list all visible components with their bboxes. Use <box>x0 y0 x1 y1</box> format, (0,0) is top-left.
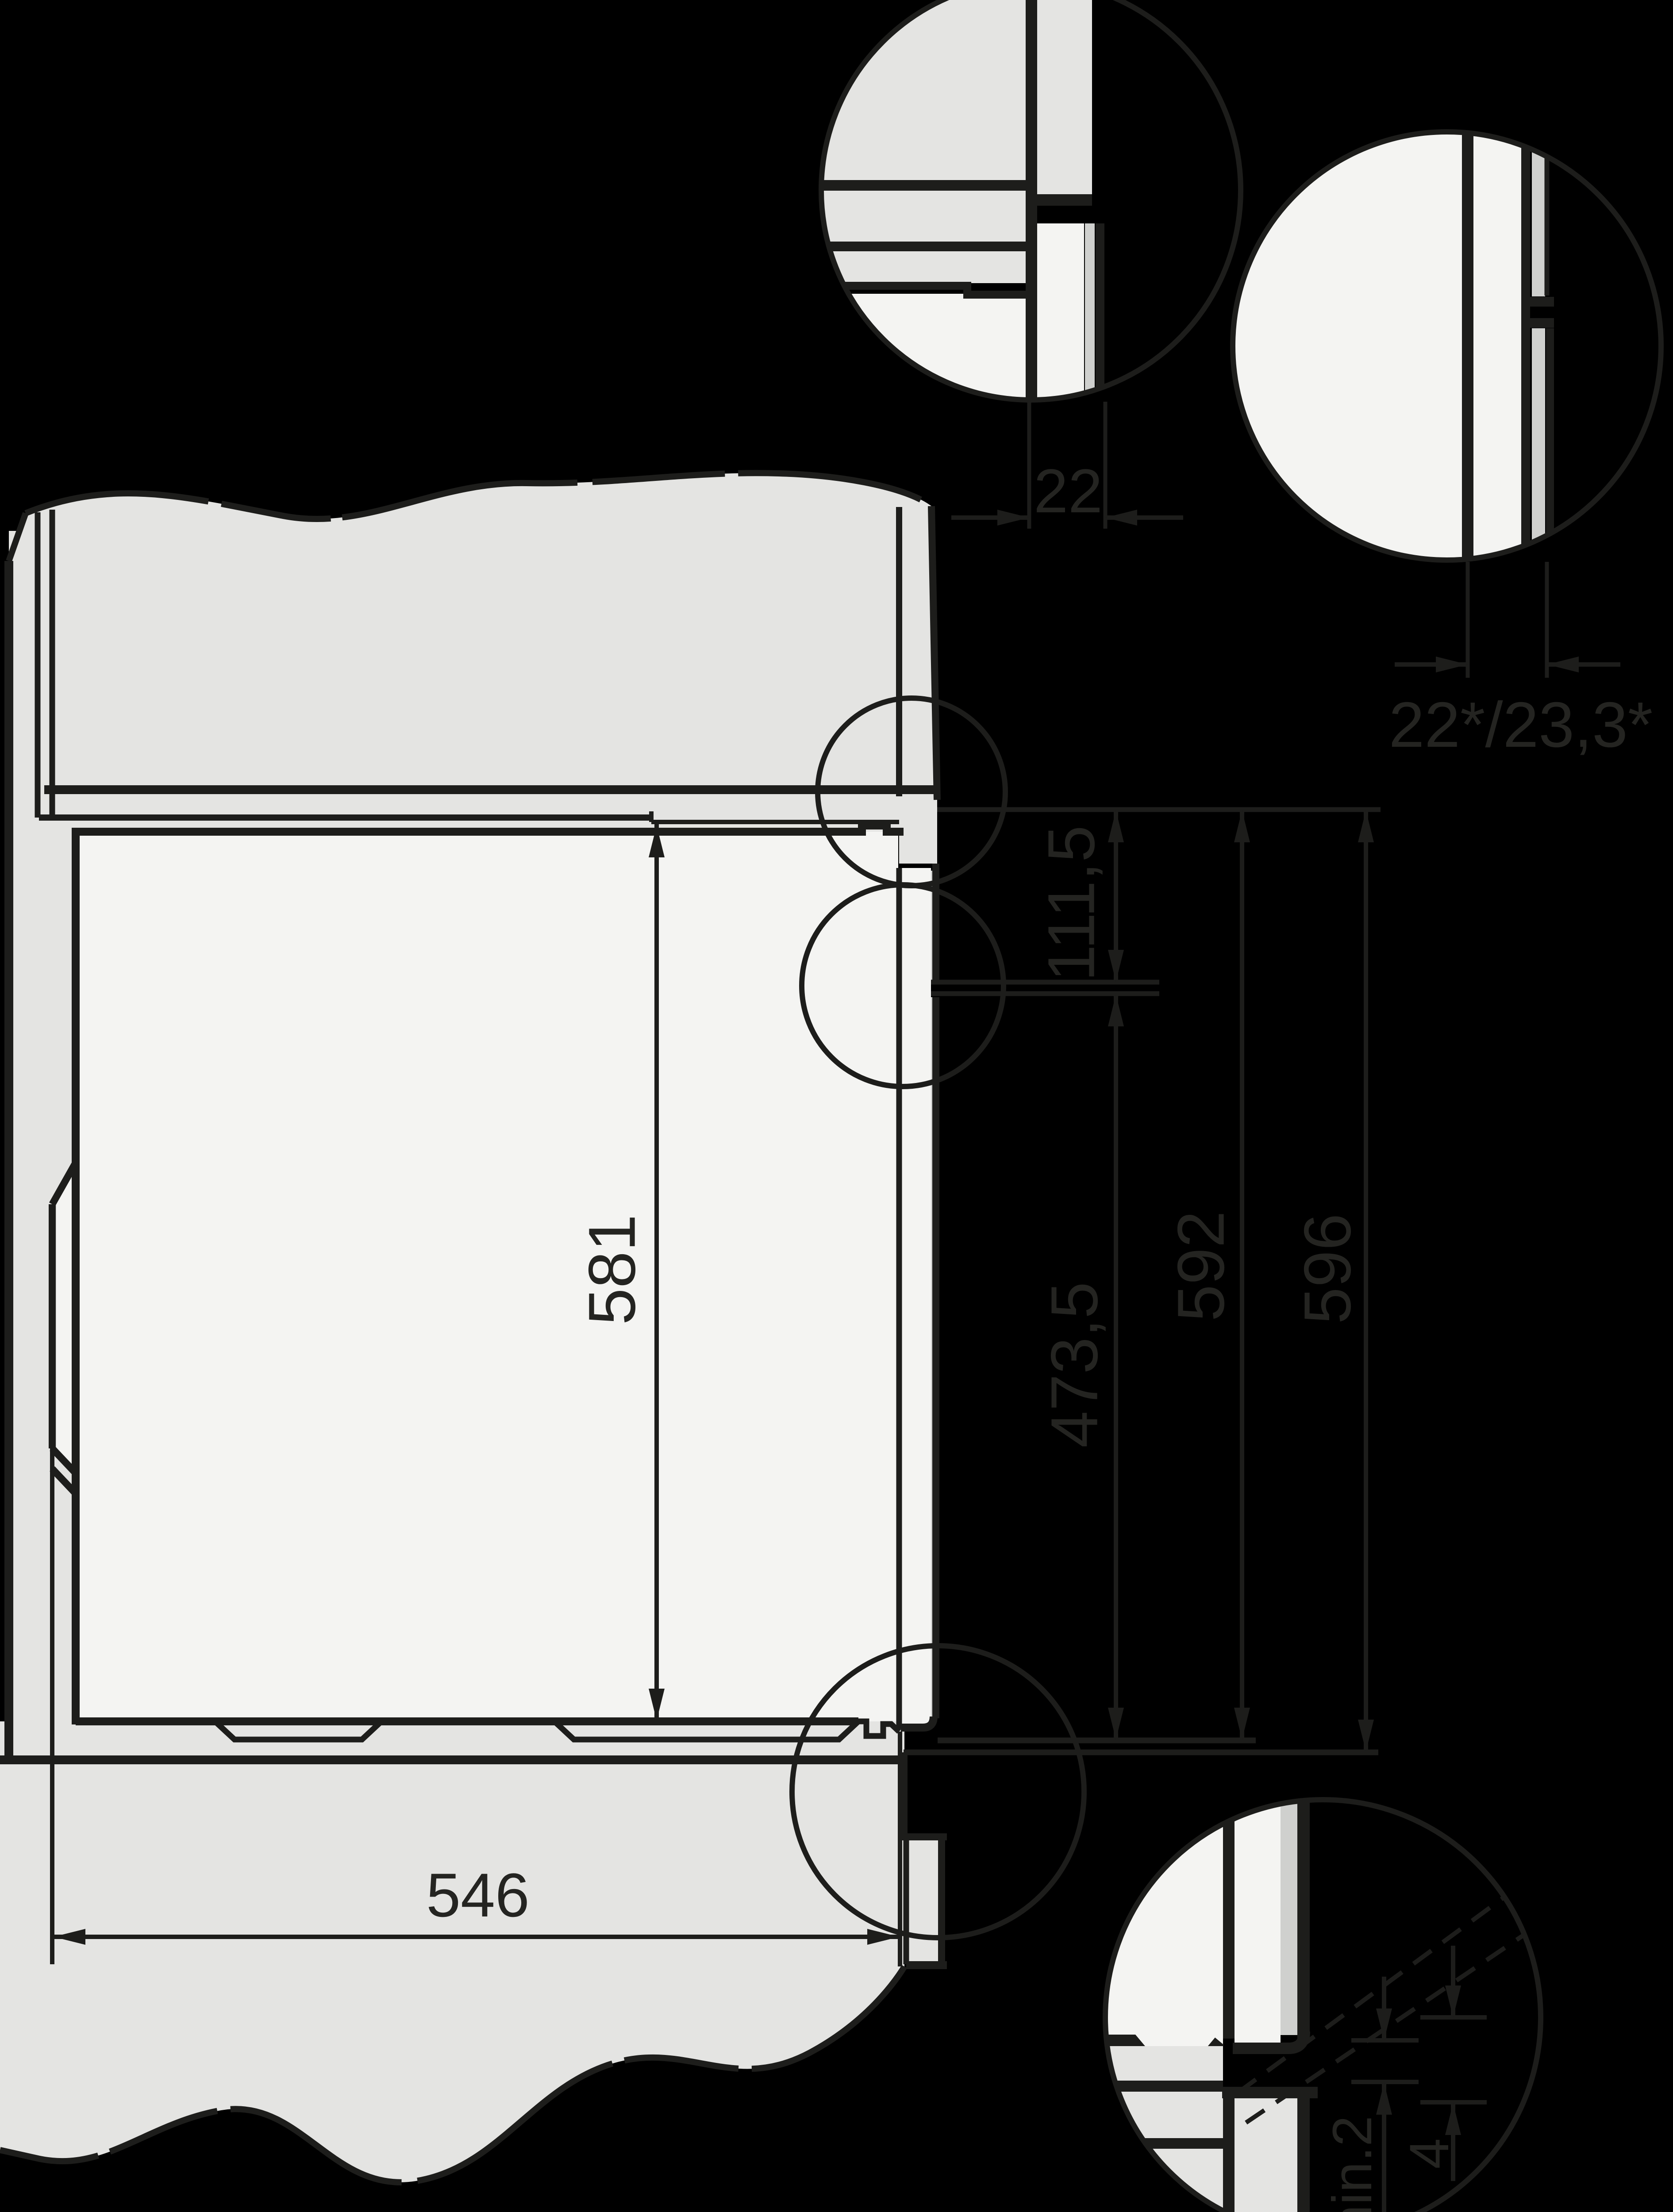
left-wall <box>9 531 80 1765</box>
dim-label-473-5: 473,5 <box>1037 1282 1111 1448</box>
top-panel <box>9 473 937 832</box>
installation-diagram: 581 111,5 473,5 592 596 <box>0 0 1673 2212</box>
dim-label-min-2: min.2 <box>1322 2116 1383 2212</box>
door-front <box>899 868 931 1729</box>
dim-label-546: 546 <box>426 1860 530 1930</box>
front-bottom-rail <box>906 1837 942 1964</box>
installation-diagram-page: 581 111,5 473,5 592 596 <box>0 0 1673 2212</box>
dim-label-111-5: 111,5 <box>1034 825 1108 981</box>
dim-label-596: 596 <box>1290 1214 1365 1324</box>
dim-label-4: 4 <box>1399 2138 1460 2169</box>
niche-interior <box>80 832 898 1721</box>
dim-label-22: 22 <box>1034 456 1103 526</box>
front-top-rail <box>899 796 937 864</box>
dim-label-22-23-3: 22*/23,3* <box>1389 689 1653 760</box>
dim-label-592: 592 <box>1164 1211 1238 1321</box>
dim-label-581: 581 <box>575 1214 649 1325</box>
